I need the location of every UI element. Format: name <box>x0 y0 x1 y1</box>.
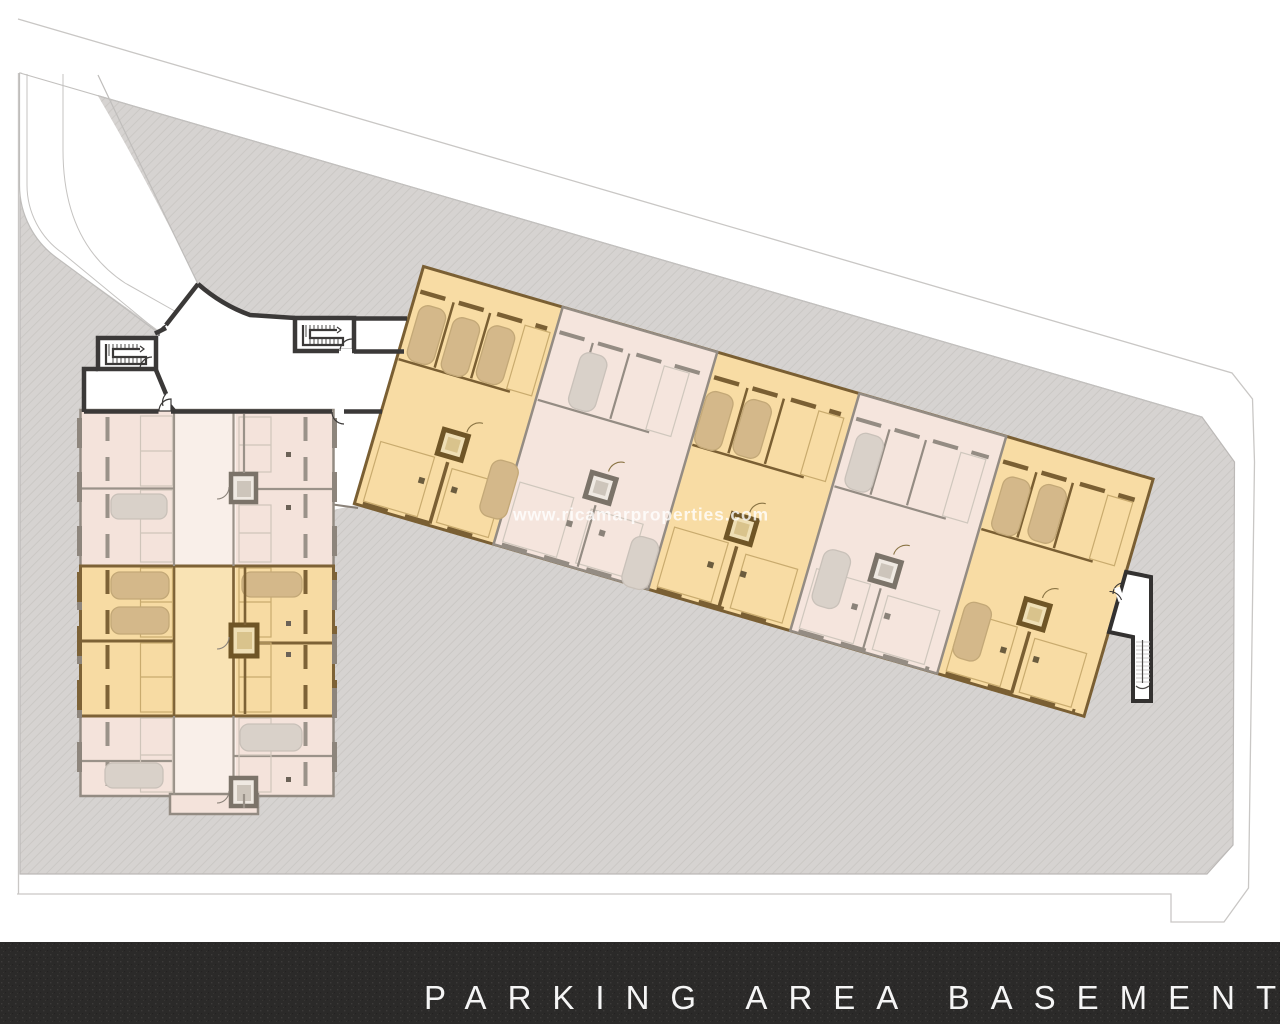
svg-text:PARKING AREA BASEMENT: PARKING AREA BASEMENT <box>424 979 1280 1016</box>
svg-text:www.ricamarproperties.com: www.ricamarproperties.com <box>512 505 769 525</box>
